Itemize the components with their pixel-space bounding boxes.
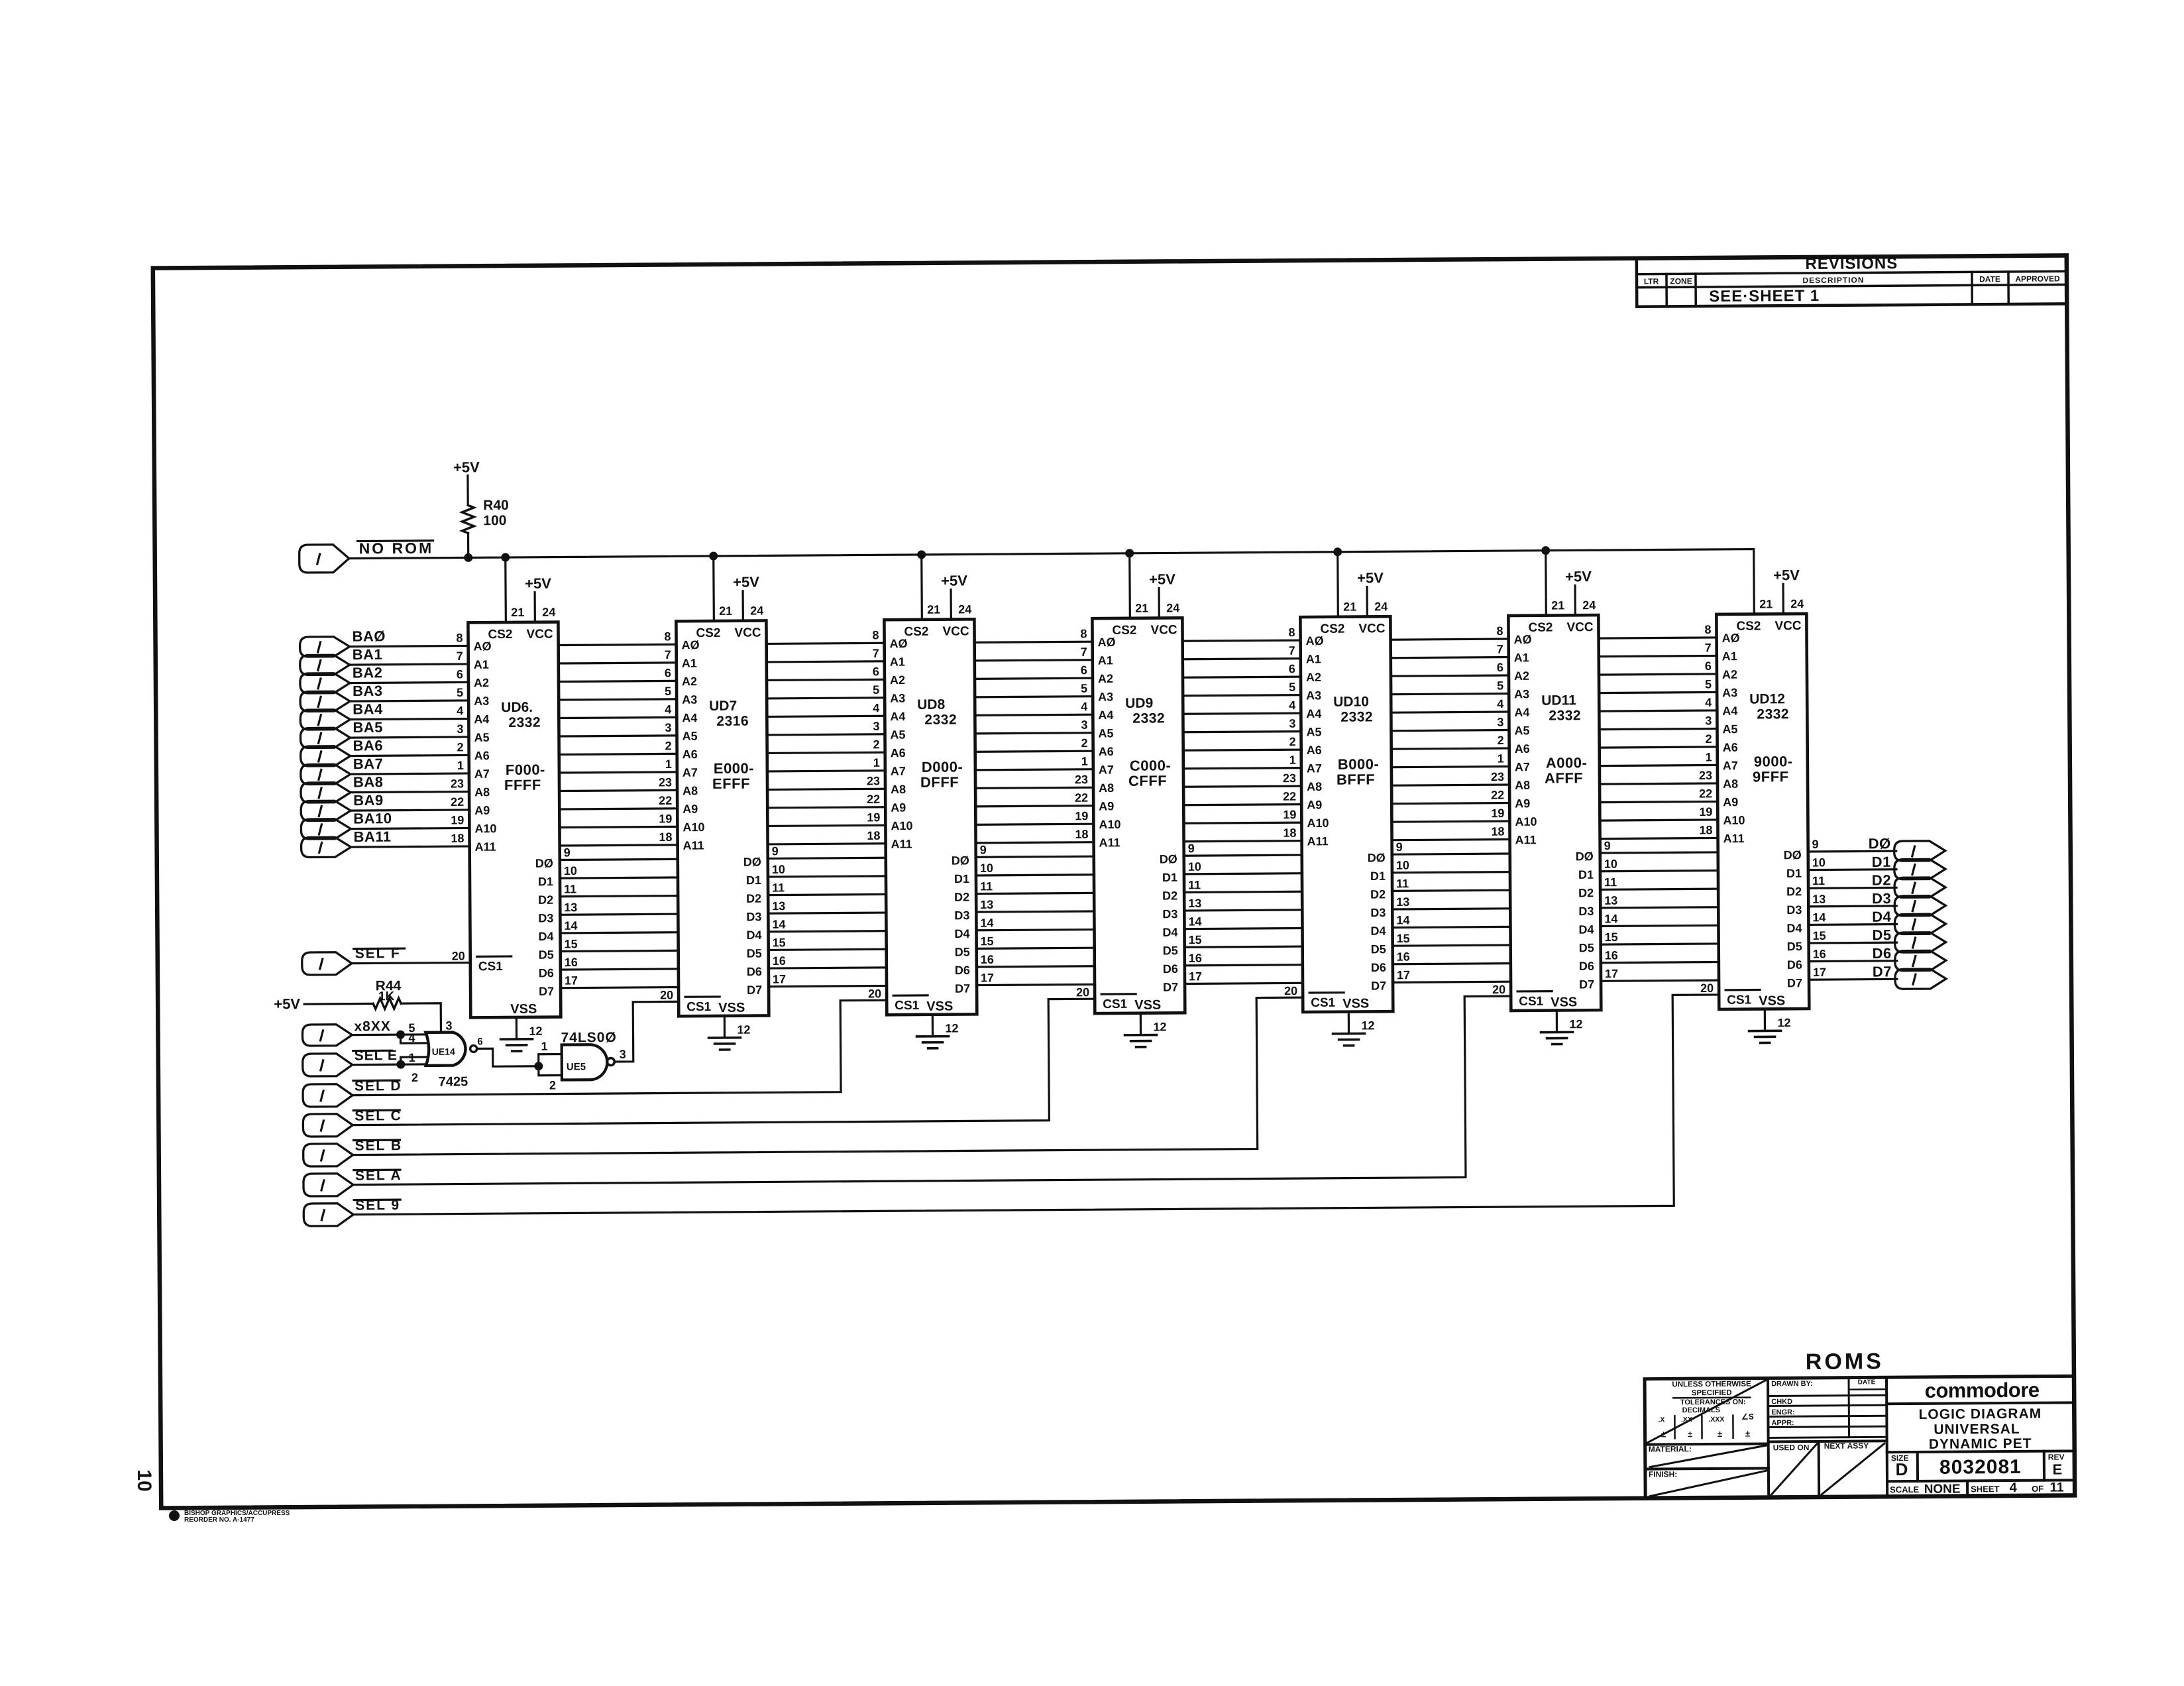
svg-text:3: 3 [1705, 714, 1712, 727]
svg-text:17: 17 [981, 971, 994, 984]
svg-text:CS1: CS1 [686, 1000, 712, 1014]
svg-text:R40: R40 [483, 498, 509, 513]
svg-text:SPECIFIED: SPECIFIED [1692, 1389, 1732, 1397]
svg-text:D1: D1 [1786, 867, 1802, 880]
svg-text:8: 8 [1704, 623, 1711, 636]
svg-text:2332: 2332 [924, 712, 957, 728]
svg-text:D5: D5 [747, 947, 762, 960]
svg-text:DØ: DØ [1368, 851, 1386, 864]
svg-text:A7: A7 [1723, 759, 1738, 772]
svg-text:15: 15 [981, 934, 994, 948]
svg-text:D7: D7 [1579, 978, 1594, 991]
svg-text:D6: D6 [747, 965, 762, 978]
svg-text:A3: A3 [474, 695, 489, 708]
svg-text:14: 14 [980, 917, 993, 930]
svg-text:DØ: DØ [743, 856, 761, 869]
svg-text:19: 19 [1283, 808, 1296, 821]
svg-text:20: 20 [1076, 985, 1089, 999]
svg-text:16: 16 [981, 953, 994, 966]
svg-text:12: 12 [1777, 1016, 1790, 1029]
svg-text:UNIVERSAL: UNIVERSAL [1934, 1422, 2020, 1437]
svg-text:5: 5 [1705, 677, 1712, 691]
svg-text:A4: A4 [474, 712, 489, 726]
svg-text:BA4: BA4 [353, 701, 383, 717]
svg-text:20: 20 [452, 949, 465, 962]
svg-text:A7: A7 [682, 766, 698, 779]
svg-text:A3: A3 [1722, 686, 1737, 699]
svg-text:UD8: UD8 [917, 697, 945, 712]
svg-text:24: 24 [1790, 597, 1804, 610]
svg-text:23: 23 [867, 774, 880, 787]
svg-text:A1: A1 [682, 657, 697, 670]
svg-text:14: 14 [564, 919, 577, 932]
svg-text:1: 1 [873, 756, 880, 769]
svg-text:7: 7 [1081, 646, 1087, 659]
svg-text:12: 12 [1153, 1020, 1166, 1033]
svg-text:22: 22 [659, 794, 672, 807]
svg-text:ROMS: ROMS [1806, 1349, 1884, 1375]
svg-text:DATE: DATE [1979, 274, 2000, 284]
svg-text:10: 10 [1396, 859, 1409, 872]
svg-text:A1: A1 [1722, 649, 1737, 663]
svg-text:+5V: +5V [274, 995, 300, 1012]
svg-text:ZONE: ZONE [1670, 276, 1692, 286]
svg-text:3: 3 [457, 722, 463, 736]
svg-text:9FFF: 9FFF [1753, 768, 1789, 785]
svg-text:DØ: DØ [1576, 850, 1594, 863]
svg-text:DFFF: DFFF [920, 774, 959, 791]
svg-text:11: 11 [1396, 877, 1409, 890]
svg-text:A6: A6 [1099, 745, 1114, 758]
svg-text:2: 2 [1081, 736, 1088, 750]
svg-text:7: 7 [665, 648, 671, 661]
svg-text:13: 13 [1812, 893, 1826, 906]
svg-text:USED ON: USED ON [1773, 1443, 1810, 1452]
svg-text:A4: A4 [1514, 706, 1529, 719]
svg-text:D4: D4 [1786, 921, 1802, 934]
svg-text:11: 11 [980, 879, 993, 893]
svg-text:12: 12 [1569, 1017, 1582, 1031]
svg-text:23: 23 [1699, 769, 1712, 782]
svg-text:17: 17 [1397, 968, 1410, 982]
svg-text:D5: D5 [1579, 941, 1594, 954]
svg-text:D4: D4 [746, 928, 761, 942]
svg-text:D2: D2 [1786, 885, 1802, 898]
svg-text:A2: A2 [1514, 669, 1529, 683]
svg-text:13: 13 [772, 899, 785, 913]
svg-text:A1: A1 [890, 655, 905, 669]
svg-text:16: 16 [1189, 952, 1202, 965]
svg-text:17: 17 [1189, 970, 1202, 983]
svg-text:23: 23 [1075, 773, 1088, 786]
svg-text:4: 4 [665, 702, 671, 716]
svg-text:SEE·SHEET 1: SEE·SHEET 1 [1709, 287, 1820, 306]
svg-text:D6: D6 [1873, 945, 1892, 962]
svg-text:3: 3 [873, 720, 879, 733]
svg-text:A2: A2 [474, 676, 489, 689]
svg-text:F000-: F000- [506, 761, 545, 778]
svg-text:24: 24 [1582, 598, 1596, 612]
svg-text:23: 23 [659, 775, 672, 789]
svg-text:LOGIC DIAGRAM: LOGIC DIAGRAM [1918, 1406, 2042, 1422]
svg-text:D3: D3 [538, 911, 553, 925]
svg-text:14: 14 [772, 918, 785, 931]
svg-text:14: 14 [1396, 913, 1409, 927]
svg-text:9: 9 [772, 844, 779, 858]
svg-text:15: 15 [1397, 932, 1410, 945]
svg-text:DESCRIPTION: DESCRIPTION [1802, 275, 1864, 285]
svg-text:D4: D4 [954, 927, 969, 940]
svg-text:A6: A6 [474, 749, 490, 762]
svg-text:4: 4 [1705, 696, 1712, 709]
svg-text:D4: D4 [1872, 909, 1892, 925]
svg-text:A9: A9 [891, 801, 906, 815]
svg-text:18: 18 [1699, 823, 1712, 836]
svg-text:4: 4 [1289, 699, 1295, 712]
svg-text:BA1: BA1 [353, 646, 383, 663]
svg-text:A7: A7 [891, 765, 906, 778]
svg-text:A5: A5 [474, 731, 489, 744]
svg-text:7: 7 [1705, 641, 1712, 654]
svg-text:UE5: UE5 [567, 1061, 586, 1072]
svg-text:VSS: VSS [510, 1002, 537, 1017]
svg-text:5: 5 [665, 685, 671, 698]
svg-text:AØ: AØ [682, 638, 700, 651]
svg-text:+5V: +5V [1149, 571, 1175, 587]
svg-text:BA5: BA5 [353, 719, 383, 736]
svg-text:9000-: 9000- [1754, 753, 1793, 769]
svg-text:1: 1 [1498, 752, 1504, 765]
svg-text:22: 22 [1283, 790, 1296, 803]
svg-text:AØ: AØ [1098, 636, 1116, 649]
svg-text:UD9: UD9 [1125, 696, 1153, 711]
svg-text:12: 12 [1361, 1019, 1374, 1032]
svg-text:D5: D5 [539, 948, 554, 962]
svg-text:4: 4 [457, 704, 463, 717]
svg-text:2332: 2332 [1549, 708, 1581, 723]
svg-text:D1: D1 [538, 875, 553, 888]
svg-text:7: 7 [1289, 644, 1295, 657]
svg-text:D2: D2 [746, 892, 761, 905]
svg-text:commodore: commodore [1925, 1378, 2040, 1402]
svg-text:16: 16 [565, 956, 578, 969]
svg-text:1: 1 [457, 759, 464, 772]
svg-text:A5: A5 [682, 730, 697, 743]
svg-text:A4: A4 [890, 710, 905, 723]
svg-text:VCC: VCC [942, 624, 969, 638]
svg-text:2316: 2316 [716, 714, 749, 729]
svg-text:D4: D4 [538, 930, 553, 943]
svg-text:D5: D5 [1371, 942, 1386, 956]
svg-text:CS1: CS1 [1311, 996, 1336, 1010]
svg-text:A4: A4 [1306, 707, 1321, 720]
svg-text:6: 6 [1081, 663, 1087, 677]
svg-text:A10: A10 [891, 819, 912, 832]
svg-text:21: 21 [511, 606, 524, 619]
svg-text:D1: D1 [1370, 870, 1386, 883]
svg-text:A10: A10 [682, 820, 704, 834]
svg-text:BA6: BA6 [353, 737, 384, 754]
svg-text:15: 15 [565, 937, 578, 950]
svg-text:4: 4 [1497, 697, 1503, 710]
svg-text:UE14: UE14 [432, 1046, 455, 1057]
svg-text:DØ: DØ [952, 854, 969, 867]
svg-text:CS2: CS2 [696, 626, 720, 640]
svg-text:C000-: C000- [1130, 757, 1172, 773]
svg-text:24: 24 [750, 604, 763, 617]
svg-text:D7: D7 [1163, 981, 1178, 994]
svg-text:9: 9 [1604, 839, 1611, 852]
svg-text:CS2: CS2 [488, 628, 512, 642]
svg-text:22: 22 [1075, 791, 1088, 805]
svg-text:.X: .X [1658, 1416, 1665, 1424]
svg-text:16: 16 [1605, 949, 1618, 962]
svg-text:OF: OF [2032, 1484, 2044, 1494]
svg-text:D2: D2 [1872, 871, 1891, 888]
svg-text:13: 13 [1604, 894, 1617, 907]
svg-text:A4: A4 [1098, 708, 1113, 722]
svg-text:3: 3 [620, 1048, 626, 1061]
svg-text:D6: D6 [539, 966, 554, 980]
svg-text:A11: A11 [1723, 832, 1745, 845]
svg-text:DØ: DØ [1869, 835, 1891, 852]
svg-text:D2: D2 [538, 893, 553, 907]
svg-text:6: 6 [1497, 661, 1503, 674]
svg-text:6: 6 [477, 1036, 482, 1047]
svg-text:±: ± [1688, 1429, 1692, 1439]
svg-text:DØ: DØ [1784, 848, 1802, 862]
svg-text:A7: A7 [474, 767, 490, 781]
svg-text:A5: A5 [1514, 724, 1529, 737]
svg-text:CS2: CS2 [904, 625, 928, 639]
svg-text:DYNAMIC PET: DYNAMIC PET [1929, 1436, 2032, 1452]
svg-text:A8: A8 [1099, 781, 1114, 795]
svg-text:REVISIONS: REVISIONS [1805, 254, 1898, 273]
svg-text:2332: 2332 [1757, 706, 1789, 722]
svg-text:21: 21 [1135, 602, 1148, 615]
svg-text:12: 12 [529, 1025, 542, 1038]
svg-text:3: 3 [665, 721, 671, 734]
svg-text:18: 18 [867, 829, 880, 842]
svg-text:SCALE: SCALE [1890, 1485, 1919, 1494]
svg-text:A10: A10 [1307, 816, 1329, 830]
svg-text:9: 9 [1812, 838, 1819, 851]
svg-text:CS1: CS1 [1519, 995, 1544, 1009]
svg-text:VSS: VSS [1759, 993, 1785, 1008]
svg-text:VSS: VSS [718, 1001, 745, 1015]
svg-text:8: 8 [664, 630, 671, 643]
svg-text:D7: D7 [955, 982, 970, 995]
svg-text:4: 4 [408, 1031, 415, 1044]
svg-text:2: 2 [457, 740, 464, 754]
svg-text:7: 7 [873, 647, 879, 660]
svg-text:19: 19 [1491, 807, 1504, 820]
svg-text:A2: A2 [1306, 671, 1321, 684]
svg-text:3: 3 [445, 1019, 452, 1033]
svg-text:D3: D3 [1370, 906, 1386, 919]
svg-text:FFFF: FFFF [504, 777, 541, 793]
svg-text:APPR:: APPR: [1771, 1419, 1794, 1427]
svg-text:CS2: CS2 [1736, 619, 1761, 633]
svg-text:3: 3 [1289, 717, 1295, 730]
svg-text:D7: D7 [747, 983, 762, 997]
svg-text:D4: D4 [1578, 923, 1594, 936]
svg-text:9: 9 [980, 843, 987, 856]
svg-text:AØ: AØ [474, 640, 492, 653]
svg-text:BAØ: BAØ [352, 628, 386, 644]
svg-text:A3: A3 [1306, 689, 1321, 702]
svg-text:8: 8 [872, 628, 879, 642]
svg-text:13: 13 [564, 901, 577, 914]
svg-text:9: 9 [564, 846, 571, 859]
svg-text:1: 1 [541, 1040, 548, 1053]
svg-text:2: 2 [549, 1079, 556, 1092]
svg-text:D3: D3 [1578, 905, 1594, 918]
svg-text:2: 2 [665, 739, 672, 752]
svg-text:CS2: CS2 [1112, 624, 1136, 638]
svg-text:18: 18 [1283, 826, 1296, 840]
svg-text:5: 5 [873, 683, 879, 697]
svg-text:D5: D5 [955, 945, 970, 958]
svg-text:A9: A9 [682, 803, 698, 816]
svg-text:13: 13 [1188, 897, 1201, 910]
svg-text:BFFF: BFFF [1337, 771, 1375, 787]
svg-text:22: 22 [867, 793, 880, 806]
svg-text:D6: D6 [1163, 962, 1178, 976]
svg-text:1: 1 [1289, 754, 1296, 767]
svg-text:22: 22 [1699, 787, 1712, 800]
svg-text:BA2: BA2 [353, 664, 383, 681]
svg-text:AØ: AØ [1306, 634, 1324, 647]
svg-text:15: 15 [1605, 930, 1618, 944]
svg-text:20: 20 [1284, 984, 1297, 997]
svg-text:D7: D7 [539, 985, 554, 998]
svg-text:VCC: VCC [526, 628, 553, 642]
svg-text:A9: A9 [1307, 798, 1322, 811]
svg-text:FINISH:: FINISH: [1649, 1469, 1677, 1479]
svg-text:CFFF: CFFF [1128, 772, 1167, 789]
svg-text:BA8: BA8 [353, 773, 384, 790]
svg-text:+5V: +5V [941, 572, 967, 589]
svg-text:21: 21 [1343, 600, 1356, 614]
svg-text:20: 20 [660, 988, 673, 1001]
svg-text:18: 18 [451, 832, 464, 845]
svg-text:VCC: VCC [1358, 622, 1386, 636]
svg-text:4: 4 [873, 701, 879, 714]
svg-text:A7: A7 [1307, 761, 1322, 775]
svg-text:D000-: D000- [922, 758, 963, 775]
svg-text:D5: D5 [1787, 940, 1802, 953]
svg-text:APPROVED: APPROVED [2015, 274, 2060, 283]
svg-text:15: 15 [773, 936, 786, 949]
svg-text:10: 10 [133, 1469, 155, 1491]
svg-text:A5: A5 [1722, 722, 1737, 736]
svg-text:A000-: A000- [1546, 754, 1588, 771]
svg-text:14: 14 [1604, 912, 1617, 925]
svg-text:D7: D7 [1873, 963, 1892, 980]
svg-text:A3: A3 [1098, 690, 1113, 703]
svg-text:A1: A1 [474, 658, 489, 671]
svg-text:±: ± [1745, 1429, 1750, 1439]
svg-text:7425: 7425 [439, 1074, 468, 1089]
svg-text:2: 2 [411, 1071, 418, 1084]
svg-text:A6: A6 [891, 746, 906, 759]
svg-text:D7: D7 [1787, 976, 1802, 989]
svg-text:D5: D5 [1163, 944, 1178, 957]
svg-text:16: 16 [1813, 947, 1826, 960]
svg-text:A11: A11 [1099, 836, 1120, 849]
svg-text:UD7: UD7 [709, 699, 737, 714]
svg-text:A6: A6 [682, 748, 698, 761]
svg-text:VCC: VCC [734, 626, 761, 640]
svg-text:BA10: BA10 [353, 810, 392, 826]
svg-text:BA11: BA11 [353, 828, 391, 845]
svg-text:24: 24 [1374, 600, 1388, 613]
svg-text:A5: A5 [1098, 726, 1113, 740]
svg-text:A3: A3 [1514, 687, 1529, 701]
svg-text:10: 10 [1604, 858, 1617, 871]
svg-text:DØ: DØ [1160, 852, 1177, 866]
svg-text:6: 6 [1289, 662, 1295, 675]
svg-text:100: 100 [483, 513, 506, 528]
svg-text:D2: D2 [954, 891, 969, 904]
svg-text:4: 4 [2009, 1481, 2017, 1495]
svg-text:x8XX: x8XX [354, 1019, 391, 1034]
svg-text:8: 8 [456, 631, 463, 644]
svg-text:VSS: VSS [1342, 996, 1369, 1011]
svg-text:18: 18 [1075, 828, 1088, 841]
svg-text:ENGR:: ENGR: [1771, 1408, 1795, 1416]
svg-text:20: 20 [1700, 982, 1714, 995]
svg-text:D6: D6 [1579, 960, 1594, 973]
svg-text:CS1: CS1 [1727, 993, 1752, 1007]
svg-text:A10: A10 [1723, 814, 1745, 827]
svg-text:15: 15 [1189, 933, 1202, 946]
svg-text:A11: A11 [683, 839, 704, 852]
svg-text:19: 19 [1699, 805, 1712, 818]
svg-text:1: 1 [665, 758, 672, 771]
svg-text:CS2: CS2 [1528, 621, 1553, 635]
svg-text:6: 6 [1705, 659, 1712, 673]
svg-text:12: 12 [737, 1023, 750, 1037]
svg-text:SHEET: SHEET [1971, 1484, 1999, 1494]
svg-text:D6: D6 [1787, 958, 1802, 972]
svg-text:+5V: +5V [1357, 569, 1384, 586]
svg-text:17: 17 [1605, 967, 1618, 980]
svg-text:9: 9 [1188, 842, 1195, 855]
svg-text:D2: D2 [1578, 886, 1594, 899]
svg-text:UNLESS OTHERWISE: UNLESS OTHERWISE [1672, 1380, 1751, 1389]
svg-text:UD11: UD11 [1541, 693, 1576, 708]
svg-text:UD6.: UD6. [501, 700, 533, 715]
svg-text:NEXT ASSY: NEXT ASSY [1824, 1441, 1869, 1450]
svg-text:VCC: VCC [1774, 619, 1802, 633]
svg-text:DØ: DØ [535, 857, 553, 870]
svg-text:23: 23 [451, 777, 464, 790]
svg-text:A9: A9 [1099, 799, 1114, 813]
svg-text:2: 2 [873, 738, 880, 751]
svg-text:A9: A9 [474, 804, 490, 817]
svg-text:+5V: +5V [453, 459, 480, 475]
svg-text:E000-: E000- [714, 760, 754, 777]
svg-text:REORDER NO. A-1477: REORDER NO. A-1477 [184, 1516, 254, 1524]
svg-text:5: 5 [1497, 679, 1503, 693]
svg-text:UD10: UD10 [1333, 694, 1369, 709]
svg-text:2: 2 [1498, 734, 1504, 747]
svg-text:23: 23 [1491, 770, 1504, 783]
svg-text:+5V: +5V [525, 575, 551, 592]
svg-text:A7: A7 [1515, 760, 1530, 773]
